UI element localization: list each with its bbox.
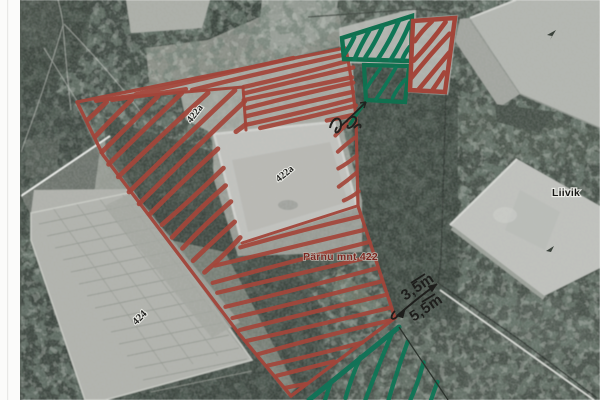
- svg-text:Liivik: Liivik: [552, 187, 580, 199]
- svg-text:Pärnu mnt 422: Pärnu mnt 422: [303, 251, 378, 263]
